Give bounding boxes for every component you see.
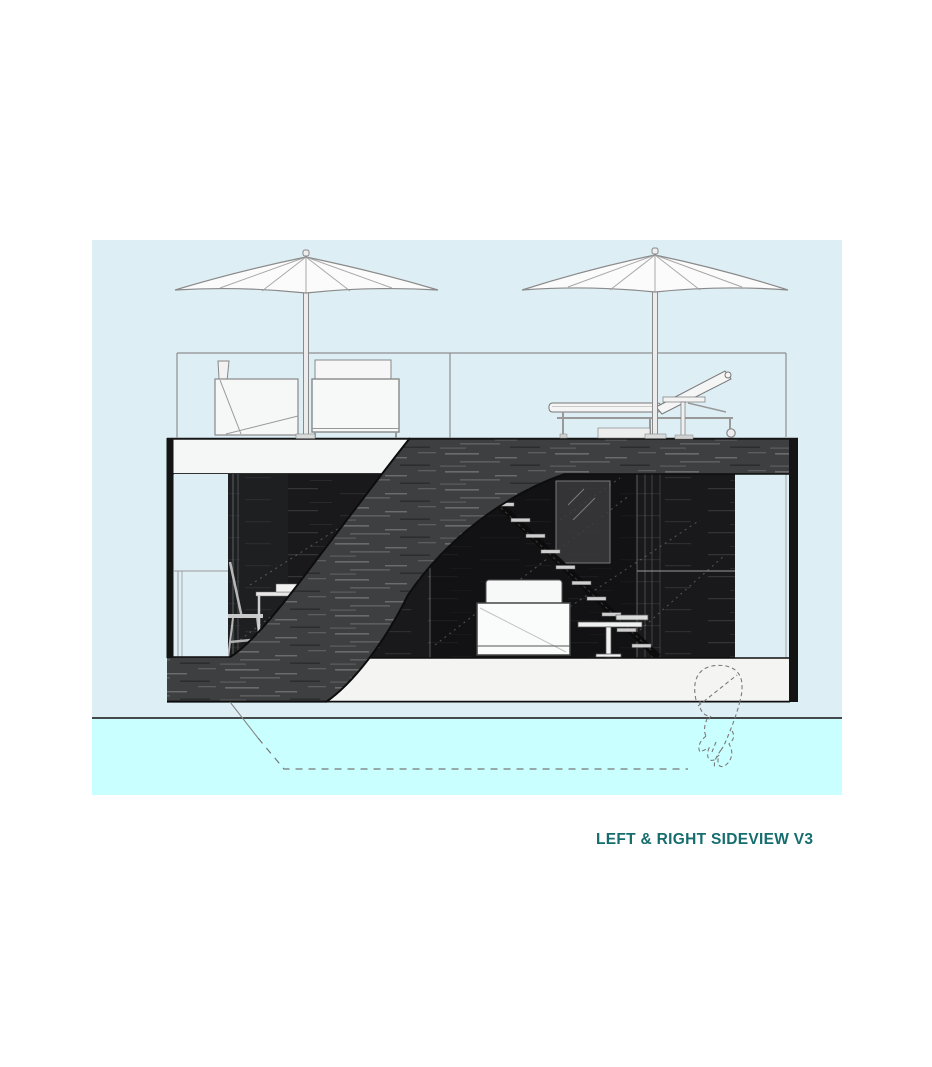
- lounger-wheel: [727, 429, 735, 437]
- houseboat-elevation-drawing: [0, 0, 932, 1067]
- glass-door: [556, 481, 610, 563]
- drawing-caption: LEFT & RIGHT SIDEVIEW V3: [596, 831, 836, 849]
- water: [92, 719, 842, 795]
- deck-armchair-right: [312, 360, 399, 438]
- lounger-storage-box: [598, 428, 650, 438]
- interior-sofa: [477, 580, 570, 655]
- page: LEFT & RIGHT SIDEVIEW V3: [0, 0, 932, 1067]
- right-window-opening: [735, 474, 790, 658]
- right-edge-column: [789, 438, 798, 702]
- left-edge-column: [167, 438, 174, 658]
